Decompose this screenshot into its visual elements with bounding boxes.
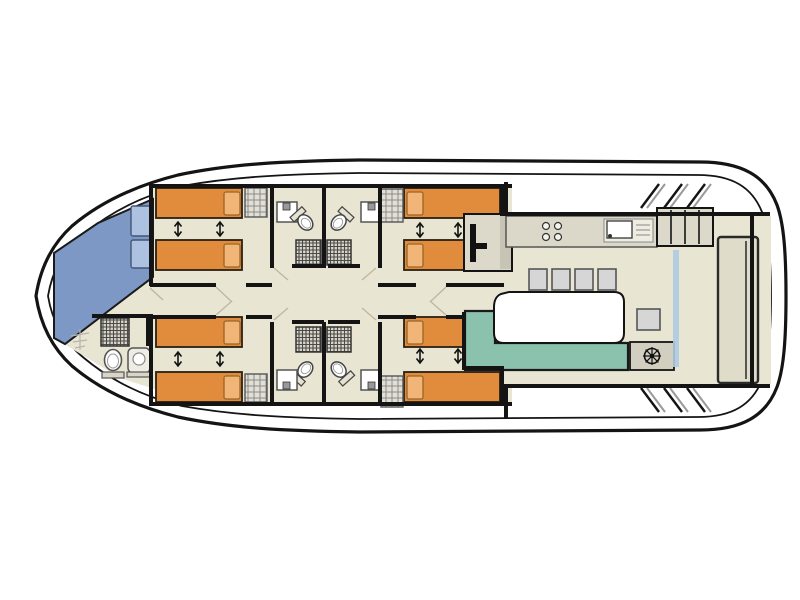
boat-deck-plan [0,0,800,600]
galley-sink [604,219,653,242]
patio-door-glass [673,250,679,367]
stool [637,309,660,330]
companionway-steps-forward [464,214,512,271]
helm-station [630,342,674,370]
dinette-table [494,292,624,343]
plan-elements [53,182,771,418]
deck-plan-canvas [0,0,800,600]
